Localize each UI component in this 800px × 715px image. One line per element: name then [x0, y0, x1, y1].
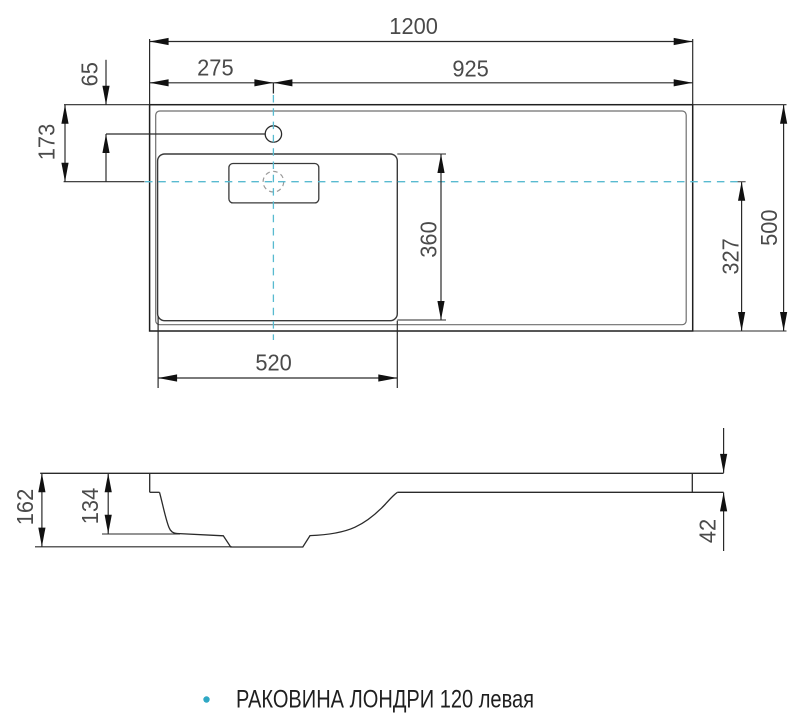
svg-text:500: 500: [757, 209, 783, 245]
svg-text:173: 173: [34, 124, 60, 160]
svg-text:1200: 1200: [389, 13, 438, 39]
svg-text:360: 360: [416, 221, 442, 257]
svg-text:РАКОВИНА ЛОНДРИ 120 левая: РАКОВИНА ЛОНДРИ 120 левая: [236, 686, 534, 714]
svg-text:925: 925: [452, 56, 488, 82]
svg-text:65: 65: [77, 62, 103, 86]
svg-text:162: 162: [12, 489, 38, 525]
svg-text:327: 327: [718, 238, 744, 274]
svg-text:275: 275: [197, 55, 233, 81]
svg-text:520: 520: [255, 350, 291, 376]
svg-text:42: 42: [695, 519, 721, 543]
svg-text:134: 134: [78, 488, 104, 524]
